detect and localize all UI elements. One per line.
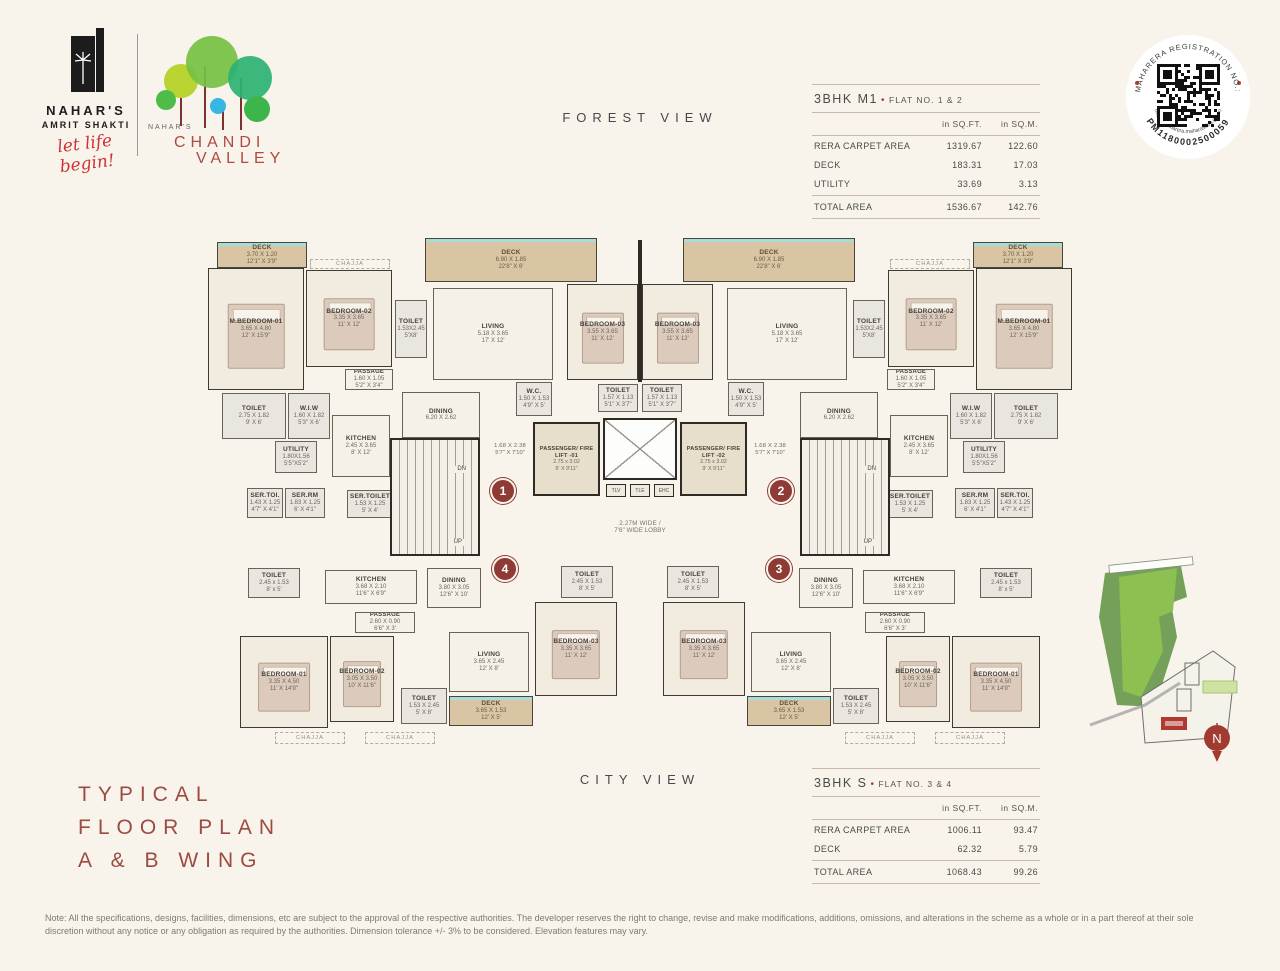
duct-ehc: EHC — [654, 484, 674, 497]
room-toilet-center: TOILET1.57 X 1.135'1" X 3'7" — [598, 384, 638, 412]
room-toilet-entry: TOILET1.53X2.455'X8' — [395, 300, 427, 358]
room-chajja-top: CHAJJA — [310, 259, 390, 269]
area-table-3bhk-s: 3BHK S•FLAT NO. 3 & 4 in SQ.FT. in SQ.M.… — [812, 768, 1040, 884]
room-ser-toilet-right: SER.TOILET1.53 X 1.255' X 4' — [887, 490, 933, 518]
room-toilet-center-right: TOILET1.57 X 1.135'1" X 3'7" — [642, 384, 682, 412]
room-entry-dim-right: 1.68 X 2.385'7" X 7'10" — [745, 440, 795, 460]
room-chajja-b1: CHAJJA — [275, 732, 345, 744]
room-deck-living-right: DECK6.90 X 1.8522'8" X 6' — [683, 238, 855, 282]
room-passage-b-right: PASSAGE2.60 X 0.906'6" X 3' — [865, 612, 925, 633]
unit-type: 3BHK S — [814, 776, 867, 790]
room-kitchen-top: KITCHEN2.45 X 3.658' X 12' — [332, 415, 390, 477]
room-kitchen-b-right: KITCHEN3.68 X 2.1011'6" X 6'9" — [863, 570, 955, 604]
brand-divider — [137, 34, 138, 156]
room-living-top-right: LIVING5.18 X 3.6517' X 12' — [727, 288, 847, 380]
room-ser-toi: SER.TOI.1.43 X 1.254'7" X 4'1" — [247, 488, 283, 518]
table-header: in SQ.FT. in SQ.M. — [812, 113, 1040, 136]
room-lift-02: PASSENGER/ FIRE LIFT -022.75 x 3.029' X … — [680, 422, 747, 496]
table-total-row: TOTAL AREA1536.67142.76 — [812, 195, 1040, 219]
plan-title-line-2: FLOOR PLAN — [78, 811, 281, 844]
area-table-3bhk-m1: 3BHK M1•FLAT NO. 1 & 2 in SQ.FT. in SQ.M… — [812, 84, 1040, 219]
room-toilet-master-right: TOILET2.75 X 1.829' X 6' — [994, 393, 1058, 439]
room-ser-rm: SER.RM1.83 X 1.256' X 4'1" — [285, 488, 325, 518]
room-bedroom-01-b-right: BEDROOM-013.35 X 4.5011' X 14'9" — [952, 636, 1040, 728]
table-row: UTILITY33.693.13 — [812, 174, 1040, 193]
table-body: RERA CARPET AREA1319.67122.60DECK183.311… — [812, 136, 1040, 219]
room-chajja-b2: CHAJJA — [365, 732, 435, 744]
room-lobby: 2.27M WIDE /7'6" WIDE LOBBY — [480, 500, 800, 554]
brand-amrit-tagline: let life begin! — [38, 129, 134, 180]
room-bedroom-02-right: BEDROOM-023.35 X 3.6511' X 12' — [888, 270, 974, 367]
plan-title: TYPICAL FLOOR PLAN A & B WING — [78, 778, 281, 877]
disclaimer-note: Note: All the specifications, designs, f… — [45, 912, 1233, 937]
table-row: RERA CARPET AREA1006.1193.47 — [812, 820, 1040, 839]
room-wc-top-right: W.C.1.50 X 1.534'9" X 5' — [728, 382, 764, 416]
room-toilet-b1: TOILET2.45 x 1.538' x 5' — [248, 568, 300, 598]
flat-numbers: FLAT NO. 3 & 4 — [878, 779, 952, 789]
room-deck-master-right: DECK3.70 X 1.2012'1" X 3'9" — [973, 242, 1063, 268]
floor-plan: DECK3.70 X 1.2012'1" X 3'9"DECK3.70 X 1.… — [205, 232, 1075, 757]
tree-icon — [156, 90, 176, 110]
table-body: RERA CARPET AREA1006.1193.47DECK62.325.7… — [812, 820, 1040, 884]
room-chajja-b2-right: CHAJJA — [845, 732, 915, 744]
room-deck-master: DECK3.70 X 1.2012'1" X 3'9" — [217, 242, 307, 268]
room-dining-top-right: DINING6.20 X 2.62 — [800, 392, 878, 438]
room-entry-dim: 1.68 X 2.385'7" X 7'10" — [485, 440, 535, 460]
room-dining-b-right: DINING3.80 X 3.0512'6" X 10' — [799, 568, 853, 608]
unit-badge-1: 1 — [490, 478, 516, 504]
room-bedroom-03-b-right: BEDROOM-033.35 X 3.6511' X 12' — [663, 602, 745, 696]
duct-tlv: TLV — [606, 484, 626, 497]
table-row: DECK183.3117.03 — [812, 155, 1040, 174]
room-ser-toilet: SER.TOILET1.53 X 1.255' X 4' — [347, 490, 393, 518]
brand-chandi-name-2: VALLEY — [196, 150, 285, 168]
room-toilet-master: TOILET2.75 X 1.829' X 6' — [222, 393, 286, 439]
room-toilet-b2-right: TOILET2.45 X 1.538' X 5' — [667, 566, 719, 598]
plan-title-line-3: A & B WING — [78, 844, 281, 877]
room-bedroom-02: BEDROOM-023.35 X 3.6511' X 12' — [306, 270, 392, 367]
north-compass-icon: N — [1204, 723, 1230, 762]
unit-type: 3BHK M1 — [814, 92, 878, 106]
room-deck-living: DECK6.90 X 1.8522'8" X 6' — [425, 238, 597, 282]
forest-view-label: FOREST VIEW — [0, 110, 1280, 125]
room-passage-top: PASSAGE1.60 X 1.055'2" X 3'4" — [345, 369, 393, 390]
room-passage-b: PASSAGE2.60 X 0.906'6" X 3' — [355, 612, 415, 633]
tower-logo-icon — [59, 28, 113, 94]
room-ser-rm-right: SER.RM1.83 X 1.256' X 4'1" — [955, 488, 995, 518]
col-sqm: in SQ.M. — [982, 803, 1038, 813]
flat-numbers: FLAT NO. 1 & 2 — [889, 95, 963, 105]
room-toilet-b1-right: TOILET2.45 x 1.538' x 5' — [980, 568, 1032, 598]
col-sqm: in SQ.M. — [982, 119, 1038, 129]
room-bedroom-03-top-right: BEDROOM-033.55 X 3.6511' X 12' — [642, 284, 713, 380]
brand-chandi-prefix: NAHAR'S — [148, 124, 193, 131]
unit-badge-4: 4 — [492, 556, 518, 582]
table-row: RERA CARPET AREA1319.67122.60 — [812, 136, 1040, 155]
room-toilet-b3-right: TOILET1.53 X 2.455' X 8' — [833, 688, 879, 724]
room-toilet-entry-right: TOILET1.53X2.455'X8' — [853, 300, 885, 358]
room-ser-toi-right: SER.TOI.1.43 X 1.254'7" X 4'1" — [997, 488, 1033, 518]
svg-text:N: N — [1212, 731, 1221, 746]
site-location-map: N — [1085, 555, 1250, 763]
unit-badge-3: 3 — [766, 556, 792, 582]
room-living-b: LIVING3.65 X 2.4512' X 8' — [449, 632, 529, 692]
qr-code: MAHARERA REGISTRATION NO.: PM11800025000… — [1124, 33, 1252, 161]
room-stairs: UPDN — [390, 438, 480, 556]
unit-badge-2: 2 — [768, 478, 794, 504]
table-row: DECK62.325.79 — [812, 839, 1040, 858]
table-title: 3BHK M1•FLAT NO. 1 & 2 — [812, 84, 1040, 113]
table-title: 3BHK S•FLAT NO. 3 & 4 — [812, 768, 1040, 797]
room-dining-b: DINING3.80 X 3.0512'6" X 10' — [427, 568, 481, 608]
room-living-top: LIVING5.18 X 3.6517' X 12' — [433, 288, 553, 380]
plan-title-line-1: TYPICAL — [78, 778, 281, 811]
room-toilet-b2: TOILET2.45 X 1.538' X 5' — [561, 566, 613, 598]
room-utility-right: UTILITY1.80X1.565'5"X5'2" — [963, 441, 1005, 473]
room-lift-01: PASSENGER/ FIRE LIFT -012.75 x 3.029' X … — [533, 422, 600, 496]
col-sqft: in SQ.FT. — [918, 803, 982, 813]
bullet: • — [881, 95, 886, 106]
room-m-bedroom-01: M.BEDROOM-013.65 X 4.8012' X 15'9" — [208, 268, 304, 390]
tree-icon — [228, 56, 272, 100]
room-kitchen-top-right: KITCHEN2.45 X 3.658' X 12' — [890, 415, 948, 477]
room-stairs-right: UPDN — [800, 438, 890, 556]
bullet: • — [870, 779, 875, 790]
room-m-bedroom-01-right: M.BEDROOM-013.65 X 4.8012' X 15'9" — [976, 268, 1072, 390]
room-bedroom-01-b: BEDROOM-013.35 X 4.5011' X 14'9" — [240, 636, 328, 728]
brand-amrit-shakti: NAHAR'S AMRIT SHAKTI let life begin! — [40, 28, 132, 174]
room-lift-shaft — [603, 418, 677, 480]
room-deck-b: DECK3.65 X 1.5312' X 5' — [449, 696, 533, 726]
room-bedroom-03-b: BEDROOM-033.35 X 3.6511' X 12' — [535, 602, 617, 696]
room-bedroom-02-b: BEDROOM-023.05 X 3.5010' X 11'6" — [330, 636, 394, 722]
room-utility: UTILITY1.80X1.565'5"X5'2" — [275, 441, 317, 473]
duct-tle: TLE — [630, 484, 650, 497]
brand-chandi-valley: NAHAR'S CHANDI VALLEY — [148, 36, 288, 168]
table-total-row: TOTAL AREA1068.4399.26 — [812, 860, 1040, 884]
room-toilet-b3: TOILET1.53 X 2.455' X 8' — [401, 688, 447, 724]
room-wc-top: W.C.1.50 X 1.534'9" X 5' — [516, 382, 552, 416]
room-deck-b-right: DECK3.65 X 1.5312' X 5' — [747, 696, 831, 726]
room-bedroom-02-b-right: BEDROOM-023.05 X 3.5010' X 11'6" — [886, 636, 950, 722]
site-map-graphic: N — [1085, 555, 1250, 763]
room-dining-top: DINING6.20 X 2.62 — [402, 392, 480, 438]
room-living-b-right: LIVING3.65 X 2.4512' X 8' — [751, 632, 831, 692]
room-wiw: W.I.W1.60 X 1.825'3" X 6' — [288, 393, 330, 439]
room-wiw-right: W.I.W1.60 X 1.825'3" X 6' — [950, 393, 992, 439]
room-chajja-b1-right: CHAJJA — [935, 732, 1005, 744]
rera-qr-badge: MAHARERA REGISTRATION NO.: PM11800025000… — [1124, 33, 1252, 161]
room-kitchen-b: KITCHEN3.68 X 2.1011'6" X 6'9" — [325, 570, 417, 604]
room-chajja-top-right: CHAJJA — [890, 259, 970, 269]
room-passage-top-right: PASSAGE1.60 X 1.055'2" X 3'4" — [887, 369, 935, 390]
room-bedroom-03-top: BEDROOM-033.55 X 3.6511' X 12' — [567, 284, 638, 380]
col-sqft: in SQ.FT. — [918, 119, 982, 129]
table-header: in SQ.FT. in SQ.M. — [812, 797, 1040, 820]
